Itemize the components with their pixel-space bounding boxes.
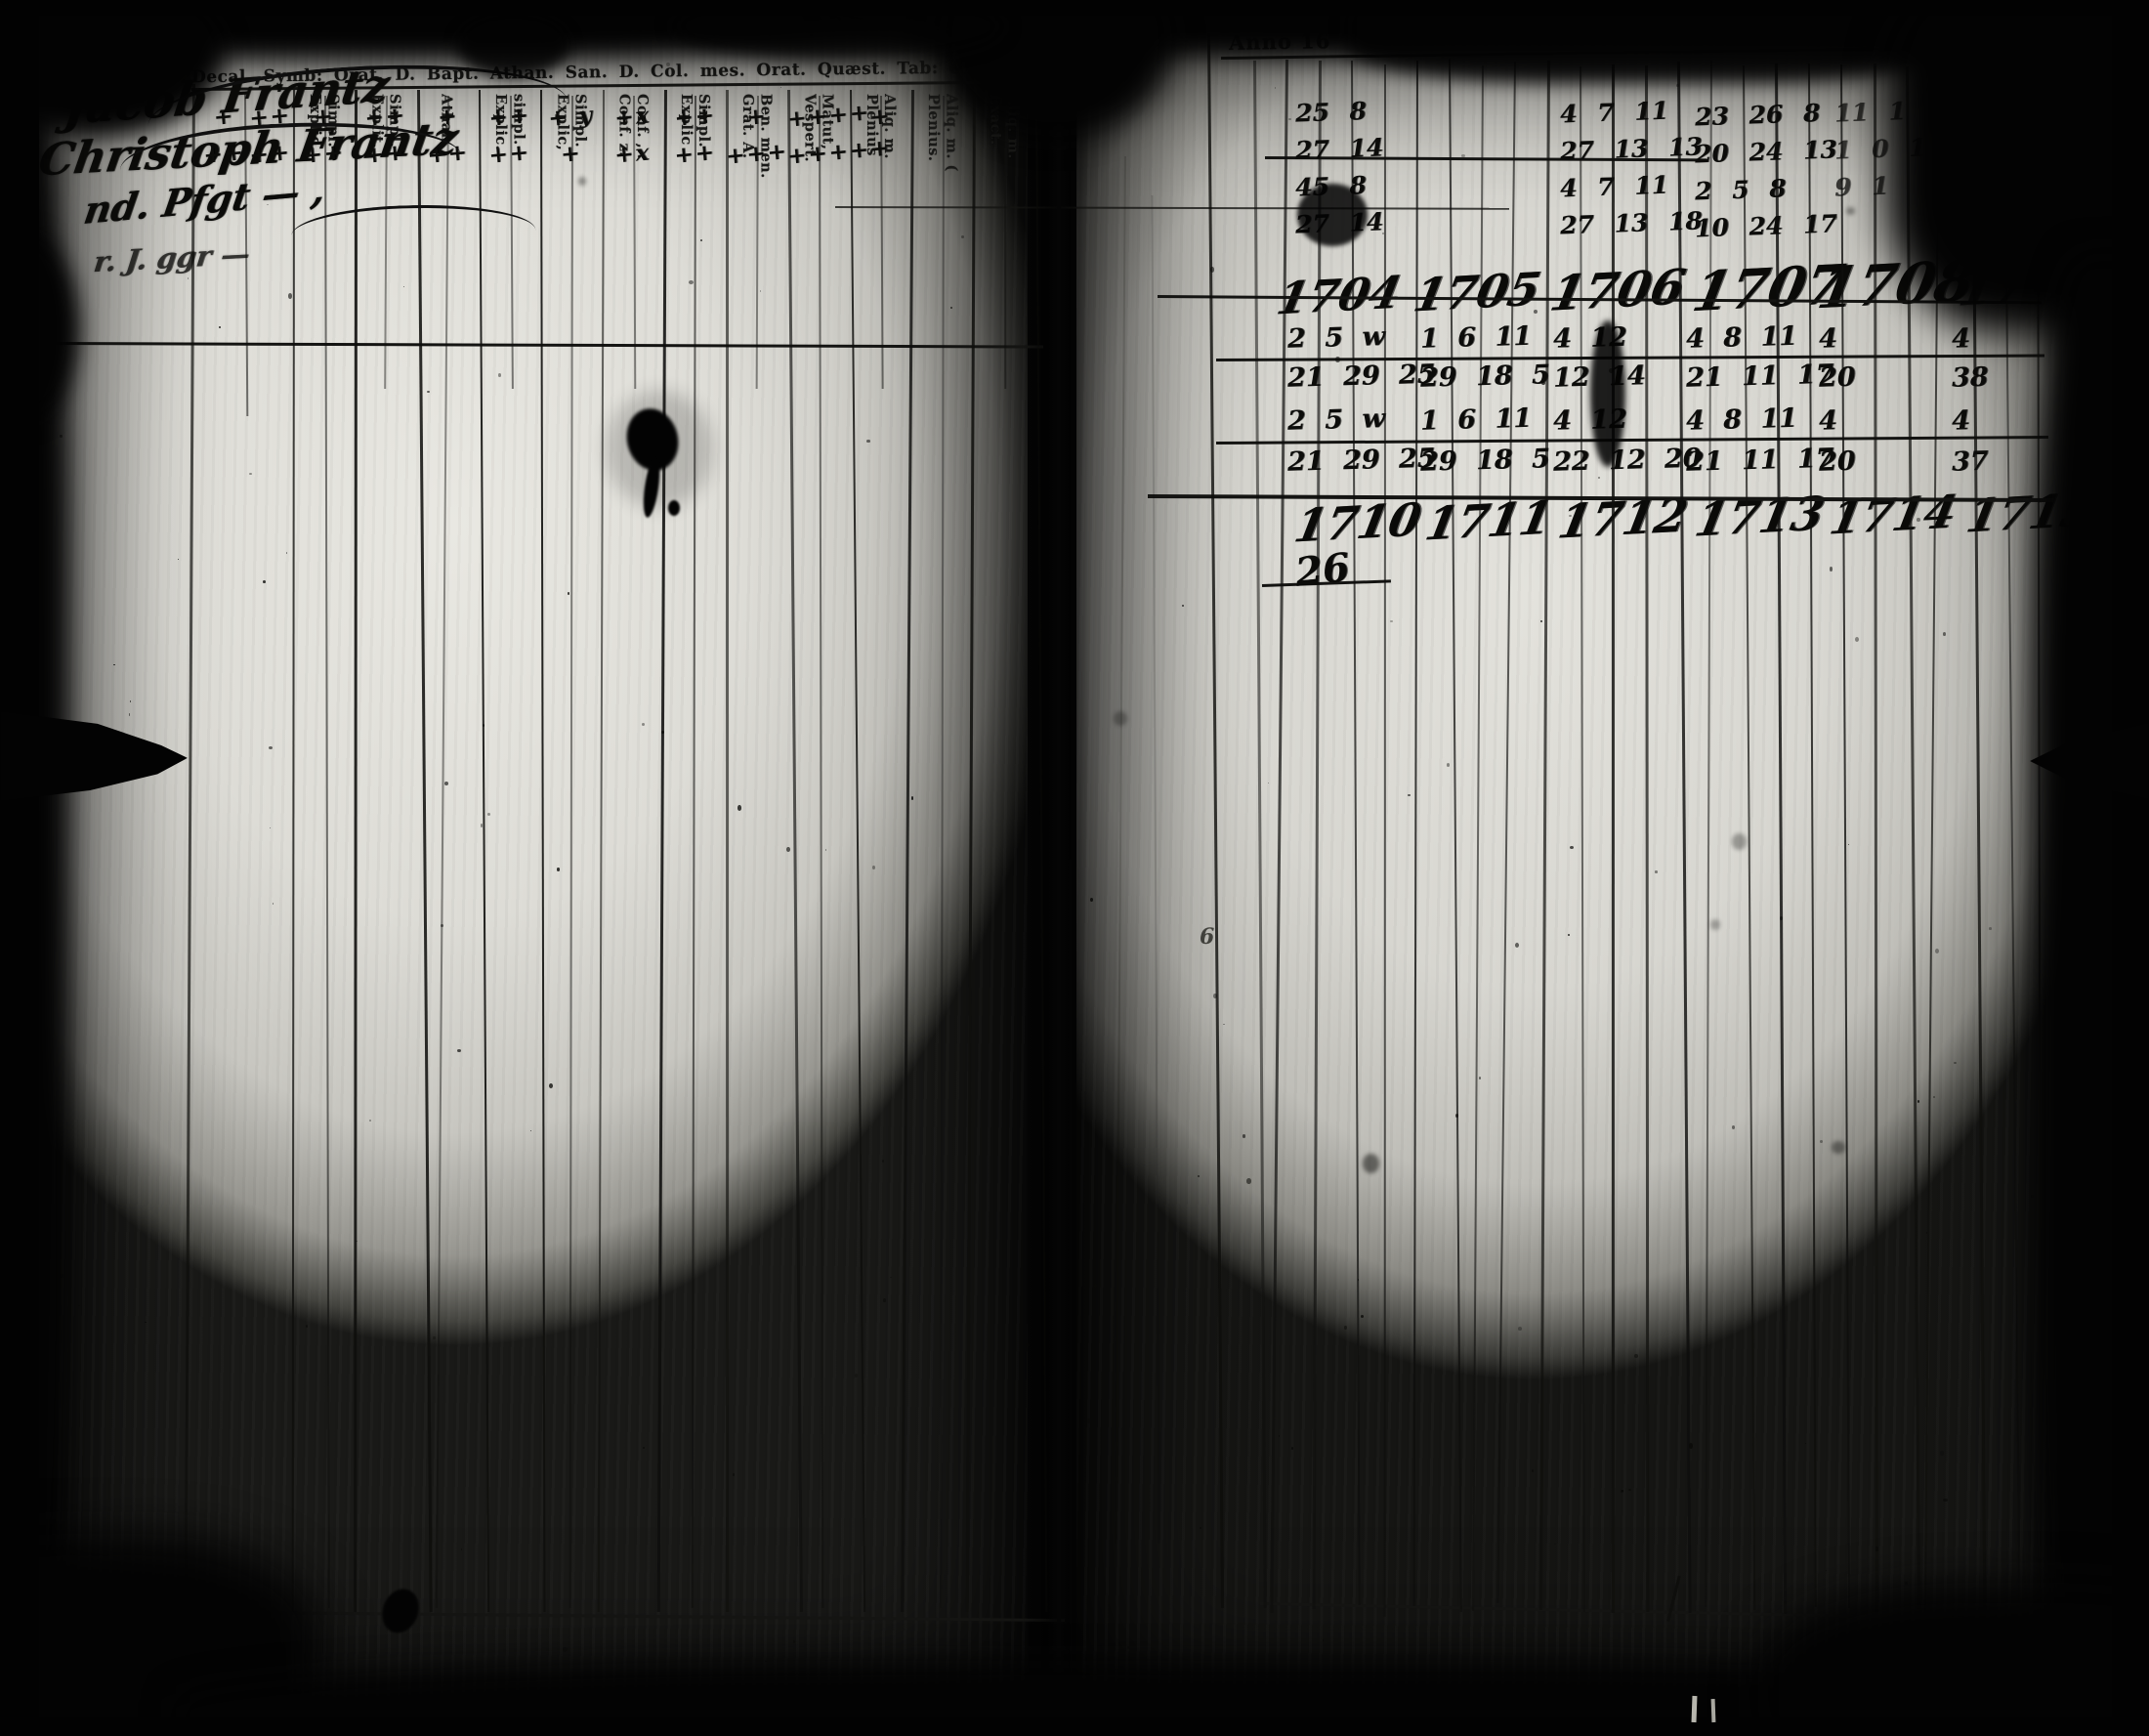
- film-frame-right: [2112, 0, 2149, 1736]
- year-count-cell: 1 6 11: [1420, 402, 1554, 437]
- count-row: 25 8: [1295, 96, 1384, 127]
- year-label: 1714: [1826, 485, 1960, 544]
- year-count-row-4: 21 29 2529 18 522 12 2021 11 172037: [1287, 445, 2147, 476]
- exam-mark-cell: ++: [663, 138, 727, 169]
- year-count-cell: 20: [1819, 360, 1953, 394]
- exam-mark-cell: ++: [478, 101, 541, 132]
- count-row: 27 13 18: [1560, 206, 1704, 239]
- year-label: 1706: [1545, 258, 1690, 322]
- film-notch-mark: [1692, 1696, 1698, 1722]
- year-count-cell: 21 29 25: [1287, 444, 1421, 478]
- microfilm-scan-canvas: Decal. Symb: Orat. D. Bapt. Athan. San. …: [0, 0, 2149, 1736]
- exam-mark-cell: +: [849, 101, 912, 132]
- year-count-cell: 21 11 17: [1686, 444, 1820, 478]
- count-row: 27 13 13: [1560, 132, 1704, 165]
- year-count-cell: 4: [1819, 402, 1953, 437]
- exam-mark-cell: ++: [246, 139, 294, 169]
- ink-blot-droplet: [668, 500, 680, 516]
- exam-mark-cell: [910, 101, 974, 132]
- count-row: 23 26 8: [1695, 98, 1838, 131]
- count-row: 20 24 13: [1695, 135, 1838, 168]
- exam-marks-row-2: ++++++++++++++x++++++++++: [201, 141, 1041, 167]
- year-count-cell: 29 18 5: [1420, 360, 1554, 394]
- exam-mark-cell: ++: [663, 101, 727, 132]
- exam-mark-cell: ++: [292, 138, 356, 169]
- film-frame-bottom: [0, 1717, 2149, 1736]
- gutter-fold-line-2: [1070, 860, 1072, 1736]
- exam-mark-cell: + y: [539, 101, 603, 132]
- margin-mark: 6: [1200, 924, 1214, 950]
- exam-mark-cell: [910, 138, 974, 169]
- year-count-cell: 2 5 w: [1287, 402, 1421, 437]
- year-count-cell: 20: [1819, 444, 1953, 478]
- exam-mark-cell: ++: [200, 139, 248, 169]
- count-row: 4 7 11: [1560, 169, 1704, 202]
- year-count-cell: 22 12 20: [1553, 444, 1687, 478]
- film-frame-left: [0, 0, 39, 1736]
- exam-mark-cell: ++: [354, 101, 417, 132]
- exam-mark-cell: +++++: [786, 138, 850, 169]
- overwritten-numbers-blot: [1297, 184, 1368, 246]
- exam-mark-cell: ++: [478, 138, 541, 169]
- page-fold-gutter: [1022, 0, 1088, 1736]
- year-label: 1705: [1410, 262, 1544, 321]
- exam-mark-cell: +: [292, 101, 356, 132]
- year-count-cell: 2 5 w: [1287, 320, 1421, 355]
- exam-mark-cell: [849, 138, 912, 169]
- top-count-group-3: 23 26 820 24 132 5 810 24 17: [1695, 101, 1837, 240]
- film-frame-top: [0, 0, 2149, 16]
- exam-mark-cell: ++: [354, 138, 417, 169]
- year-count-cell: 21 29 25: [1287, 360, 1421, 394]
- year-count-cell: 4: [1819, 320, 1953, 355]
- year-count-cell: 1 6 11: [1420, 320, 1554, 355]
- year-count-cell: 4 8 11: [1686, 320, 1820, 355]
- exam-mark-cell: ++: [416, 138, 480, 169]
- exam-mark-cell: +: [416, 101, 480, 132]
- exam-mark-cell: +: [725, 101, 788, 132]
- year-count-row-3: 2 5 w1 6 114 124 8 1144: [1287, 404, 2147, 435]
- exam-marks-row-1: ++++++++++ y+x++++++++: [201, 104, 1041, 130]
- ink-mass-over-header: [457, 12, 569, 78]
- year-label: 1711: [1421, 490, 1556, 550]
- count-row: 27 14: [1295, 133, 1384, 164]
- exam-mark-cell: ++++: [786, 101, 850, 132]
- year-count-cell: 21 11 17: [1686, 360, 1820, 394]
- exam-mark-cell: +: [200, 102, 248, 132]
- count-row: 2 5 8: [1695, 172, 1838, 205]
- count-row: 4 7 11: [1560, 95, 1704, 128]
- exam-mark-cell: ++: [246, 102, 294, 132]
- exam-mark-cell: +x: [601, 138, 664, 169]
- crossed-out-number: 26: [1293, 544, 1352, 596]
- film-notch-mark: [1711, 1699, 1716, 1722]
- exam-mark-cell: +++: [725, 138, 788, 169]
- year-count-cell: 29 18 5: [1420, 444, 1554, 478]
- exam-mark-cell: +x: [601, 101, 664, 132]
- gutter-fold-line: [1057, 0, 1061, 1736]
- year-count-row-2: 21 29 2529 18 512 1421 11 172038: [1287, 361, 2147, 392]
- exam-mark-cell: +: [539, 138, 603, 169]
- count-row: 10 24 17: [1695, 209, 1838, 242]
- column-smear-blot: [1590, 320, 1625, 467]
- year-count-cell: 4 8 11: [1686, 402, 1820, 437]
- top-count-group-2: 4 7 1127 13 134 7 1127 13 18: [1560, 98, 1703, 237]
- year-label: 1710: [1290, 492, 1425, 552]
